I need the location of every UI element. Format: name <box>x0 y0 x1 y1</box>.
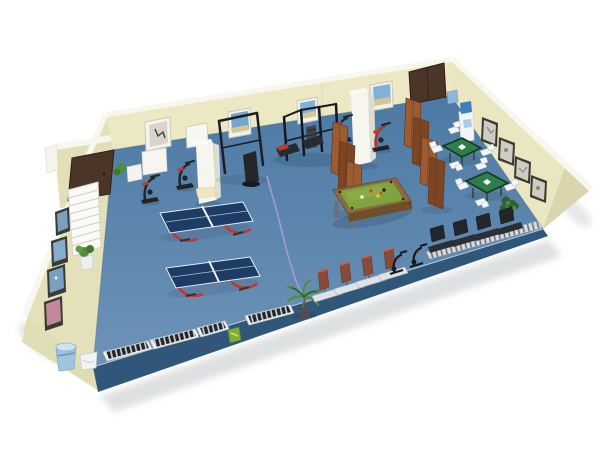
floor-mat <box>196 187 216 198</box>
left-picture-1 <box>55 207 70 236</box>
radiator-shelf <box>68 182 101 256</box>
picture-beach-1 <box>228 108 251 138</box>
left-picture-2 <box>51 236 68 267</box>
room-3d-render: 3D isometric cutaway render of a recreat… <box>0 0 600 450</box>
entry-cabinet <box>142 148 167 175</box>
left-picture-3 <box>47 264 66 298</box>
door-handle <box>103 173 105 175</box>
poster-anatomy <box>145 117 171 151</box>
white-end-cabinet <box>45 145 58 173</box>
left-picture-4 <box>44 296 63 331</box>
water-bottle <box>460 101 472 114</box>
wall-sign <box>447 90 458 104</box>
corner-stool <box>80 352 97 370</box>
trash-can <box>56 343 76 371</box>
render-canvas: 3D isometric cutaway render of a recreat… <box>0 0 600 450</box>
